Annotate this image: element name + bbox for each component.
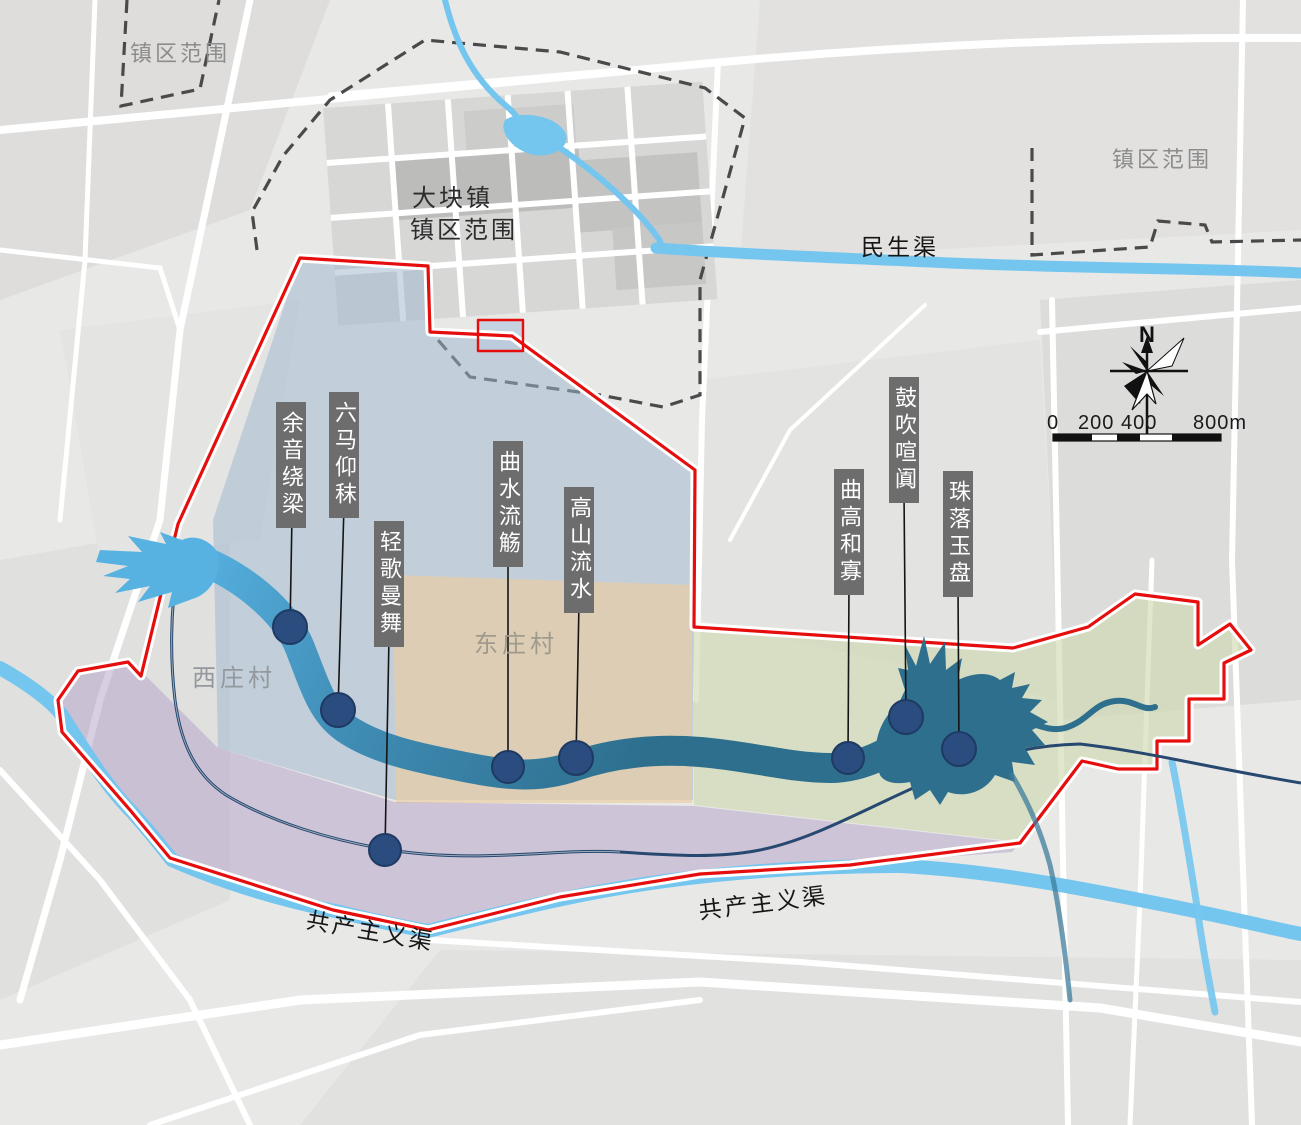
poi-dot-qugaohegua[interactable] <box>832 742 864 774</box>
poi-dot-liumayangmo[interactable] <box>321 693 355 727</box>
poi-label-qugaohegua[interactable]: 曲高和寡 <box>834 469 864 595</box>
scale-tick-400: 400 <box>1121 412 1157 435</box>
village-label-east: 东庄村 <box>474 624 558 659</box>
scale-tick-200: 200 <box>1078 412 1114 435</box>
scale-bar <box>1053 434 1221 441</box>
poi-label-guchuixuantian[interactable]: 鼓吹喧阗 <box>889 377 919 503</box>
boundary-label-topright: 镇区范围 <box>1112 142 1212 174</box>
planning-map: 镇区范围 大块镇 镇区范围 民生渠 镇区范围 西庄村 东庄村 共产主义渠 共产主… <box>0 0 1301 1125</box>
poi-dot-qushuiliushang[interactable] <box>492 751 524 783</box>
scale-tick-0: 0 <box>1047 412 1059 435</box>
poi-dot-gaoshanliushui[interactable] <box>559 741 593 775</box>
north-label: N <box>1139 322 1155 348</box>
boundary-label-topleft: 镇区范围 <box>130 36 230 68</box>
poi-label-gaoshanliushui[interactable]: 高山流水 <box>564 487 594 613</box>
map-canvas <box>0 0 1301 1125</box>
town-boundary-label: 镇区范围 <box>410 210 518 245</box>
canal-label-minsheng: 民生渠 <box>861 228 939 262</box>
poi-dot-guchuixuantian[interactable] <box>889 700 923 734</box>
poi-label-yuyinraoliang[interactable]: 余音绕梁 <box>276 402 306 528</box>
town-name-label: 大块镇 <box>412 178 493 213</box>
poi-dot-zhuluoyupan[interactable] <box>942 732 976 766</box>
poi-label-liumayangmo[interactable]: 六马仰秣 <box>329 392 359 518</box>
scale-tick-800m: 800m <box>1193 412 1247 435</box>
village-label-west: 西庄村 <box>192 658 276 693</box>
poi-dot-qinggemanwu[interactable] <box>369 834 401 866</box>
poi-label-zhuluoyupan[interactable]: 珠落玉盘 <box>943 471 973 597</box>
poi-label-qinggemanwu[interactable]: 轻歌曼舞 <box>374 521 404 647</box>
poi-dot-yuyinraoliang[interactable] <box>273 610 307 644</box>
poi-label-qushuiliushang[interactable]: 曲水流觞 <box>493 441 523 567</box>
